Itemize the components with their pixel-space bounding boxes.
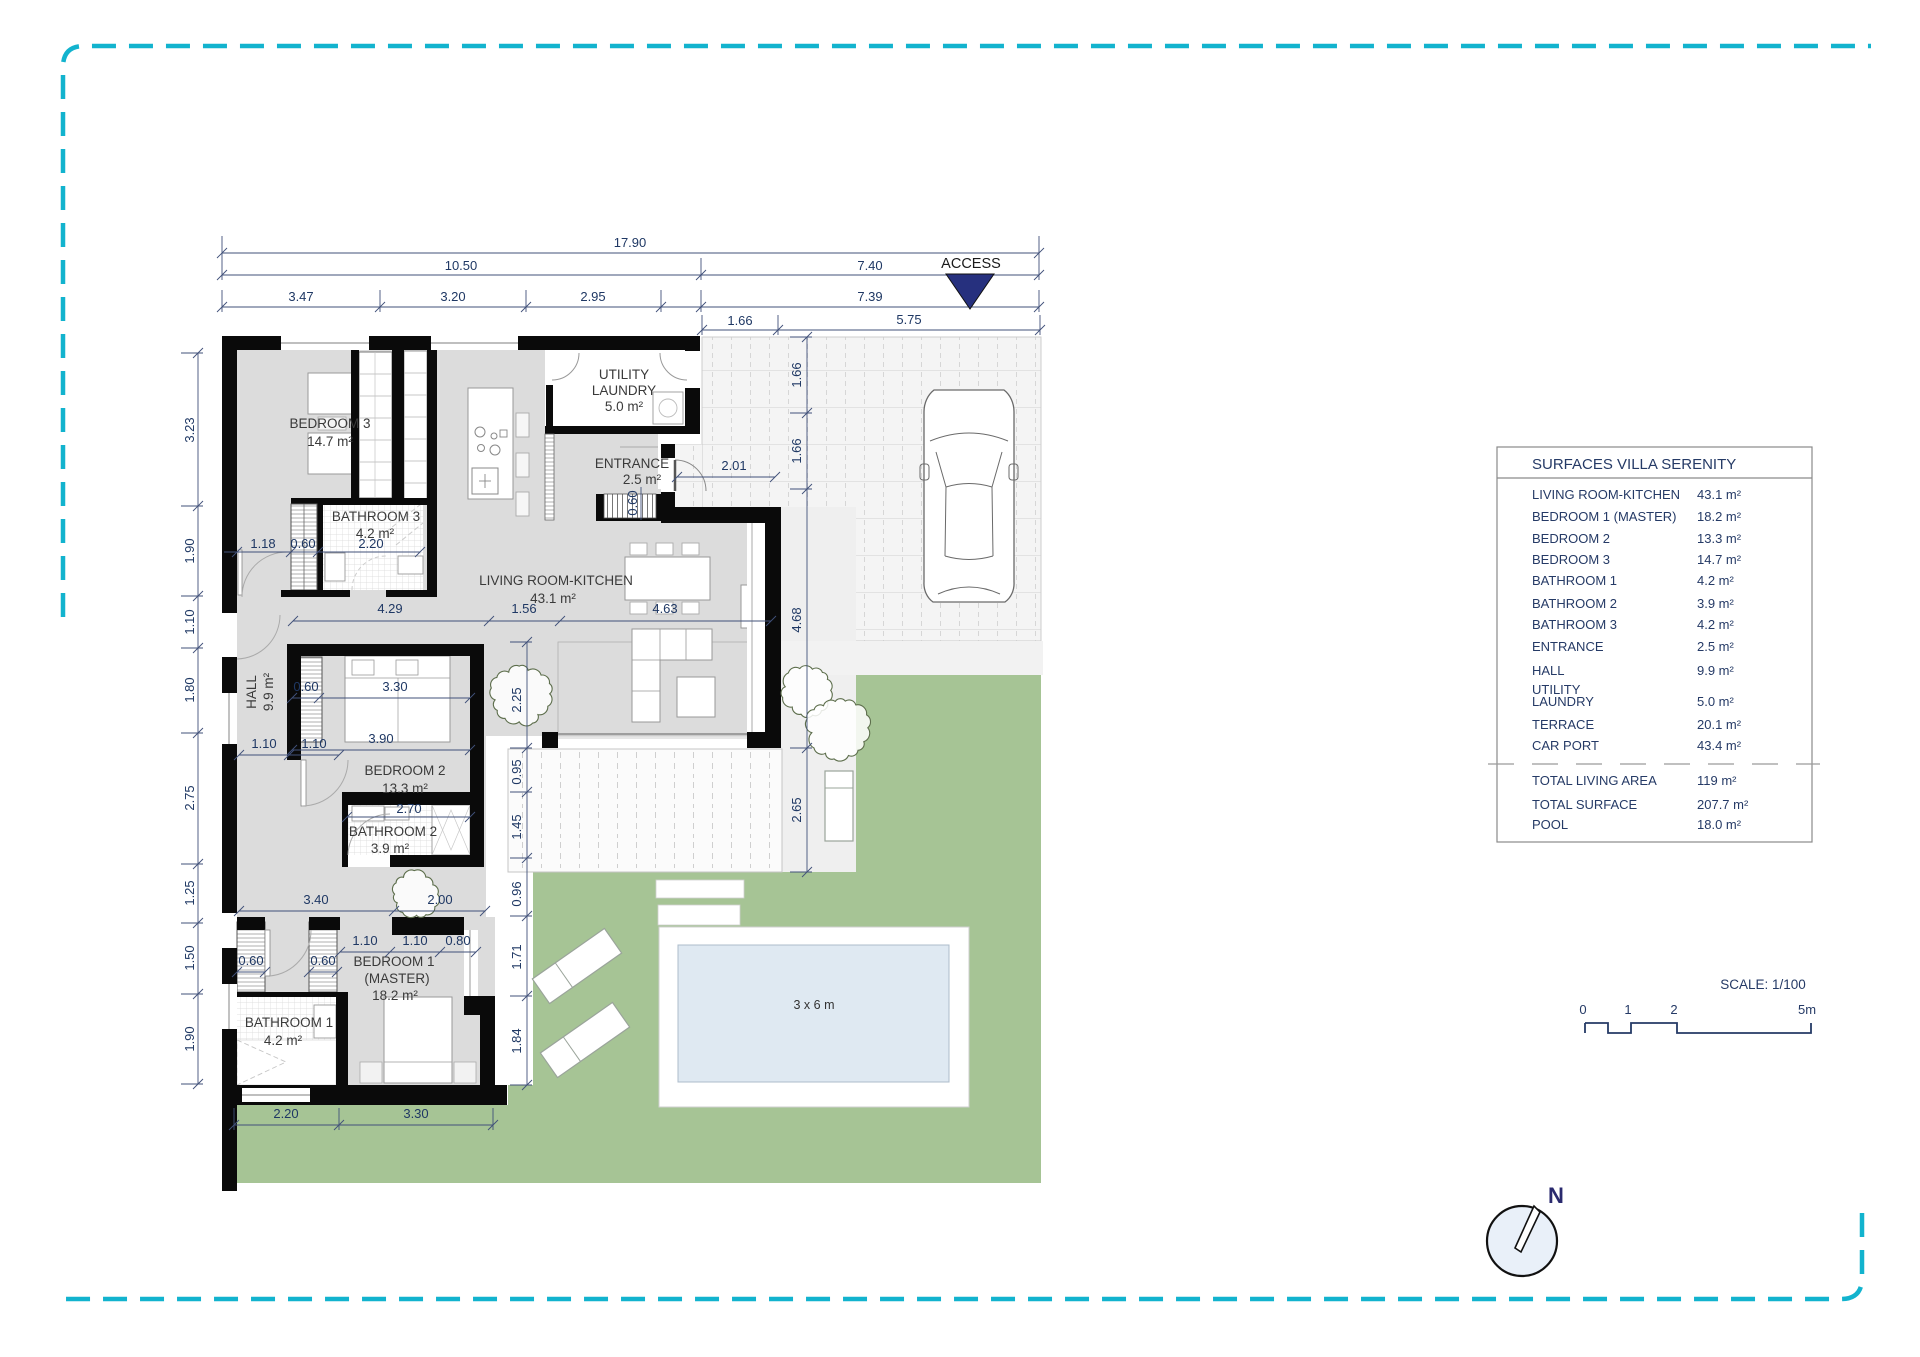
svg-text:2.70: 2.70 bbox=[396, 801, 421, 816]
svg-text:0.60: 0.60 bbox=[625, 490, 640, 515]
svg-text:LAUNDRY: LAUNDRY bbox=[1532, 694, 1594, 709]
svg-text:0.60: 0.60 bbox=[238, 953, 263, 968]
svg-text:3.47: 3.47 bbox=[288, 289, 313, 304]
svg-text:0.60: 0.60 bbox=[290, 536, 315, 551]
svg-text:HALL: HALL bbox=[1532, 663, 1565, 678]
svg-text:4.2 m²: 4.2 m² bbox=[356, 526, 395, 541]
svg-text:TOTAL SURFACE: TOTAL SURFACE bbox=[1532, 797, 1638, 812]
svg-text:SURFACES VILLA SERENITY: SURFACES VILLA SERENITY bbox=[1532, 456, 1736, 473]
svg-text:TOTAL LIVING AREA: TOTAL LIVING AREA bbox=[1532, 773, 1657, 788]
svg-text:1.10: 1.10 bbox=[251, 736, 276, 751]
svg-text:LAUNDRY: LAUNDRY bbox=[592, 383, 656, 398]
svg-text:1.25: 1.25 bbox=[182, 880, 197, 905]
svg-text:7.39: 7.39 bbox=[857, 289, 882, 304]
svg-text:SCALE: 1/100: SCALE: 1/100 bbox=[1720, 977, 1806, 992]
svg-text:LIVING ROOM-KITCHEN: LIVING ROOM-KITCHEN bbox=[1532, 487, 1680, 502]
svg-text:BATHROOM 1: BATHROOM 1 bbox=[245, 1015, 333, 1030]
svg-text:BEDROOM 3: BEDROOM 3 bbox=[289, 416, 370, 431]
svg-text:0.80: 0.80 bbox=[445, 933, 470, 948]
svg-text:43.4 m²: 43.4 m² bbox=[1697, 738, 1742, 753]
svg-text:1: 1 bbox=[1624, 1002, 1631, 1017]
svg-text:5.0 m²: 5.0 m² bbox=[605, 399, 644, 414]
svg-text:5m: 5m bbox=[1798, 1002, 1816, 1017]
svg-text:1.10: 1.10 bbox=[352, 933, 377, 948]
svg-text:1.10: 1.10 bbox=[182, 609, 197, 634]
svg-text:10.50: 10.50 bbox=[445, 258, 478, 273]
svg-text:3.30: 3.30 bbox=[403, 1106, 428, 1121]
svg-text:4.68: 4.68 bbox=[789, 607, 804, 632]
svg-text:1.84: 1.84 bbox=[509, 1028, 524, 1053]
svg-text:0.96: 0.96 bbox=[509, 881, 524, 906]
svg-text:BATHROOM 2: BATHROOM 2 bbox=[349, 824, 437, 839]
svg-text:BEDROOM 1: BEDROOM 1 bbox=[353, 954, 434, 969]
svg-text:4.63: 4.63 bbox=[652, 601, 677, 616]
svg-text:3.40: 3.40 bbox=[303, 892, 328, 907]
svg-text:BEDROOM 2: BEDROOM 2 bbox=[364, 763, 445, 778]
svg-text:2: 2 bbox=[1670, 1002, 1677, 1017]
svg-text:2.20: 2.20 bbox=[273, 1106, 298, 1121]
svg-text:43.1 m²: 43.1 m² bbox=[1697, 487, 1742, 502]
svg-text:9.9 m²: 9.9 m² bbox=[1697, 663, 1735, 678]
svg-text:1.80: 1.80 bbox=[182, 677, 197, 702]
svg-text:2.00: 2.00 bbox=[427, 892, 452, 907]
svg-text:UTILITY: UTILITY bbox=[599, 367, 649, 382]
svg-text:18.0 m²: 18.0 m² bbox=[1697, 817, 1742, 832]
svg-text:(MASTER): (MASTER) bbox=[364, 971, 429, 986]
svg-text:2.65: 2.65 bbox=[789, 797, 804, 822]
svg-text:3 x 6 m: 3 x 6 m bbox=[794, 998, 835, 1012]
svg-text:1.10: 1.10 bbox=[301, 736, 326, 751]
svg-text:3.9 m²: 3.9 m² bbox=[1697, 596, 1735, 611]
svg-text:20.1 m²: 20.1 m² bbox=[1697, 717, 1742, 732]
svg-text:0.95: 0.95 bbox=[509, 759, 524, 784]
svg-text:14.7 m²: 14.7 m² bbox=[1697, 552, 1742, 567]
svg-text:TERRACE: TERRACE bbox=[1532, 717, 1594, 732]
svg-text:207.7 m²: 207.7 m² bbox=[1697, 797, 1749, 812]
svg-text:2.5 m²: 2.5 m² bbox=[623, 472, 662, 487]
svg-text:1.66: 1.66 bbox=[789, 362, 804, 387]
svg-text:1.18: 1.18 bbox=[250, 536, 275, 551]
svg-text:BATHROOM 2: BATHROOM 2 bbox=[1532, 596, 1617, 611]
svg-text:7.40: 7.40 bbox=[857, 258, 882, 273]
svg-text:3.23: 3.23 bbox=[182, 417, 197, 442]
svg-text:BEDROOM 3: BEDROOM 3 bbox=[1532, 552, 1610, 567]
svg-text:2.01: 2.01 bbox=[721, 458, 746, 473]
svg-text:HALL: HALL bbox=[244, 675, 259, 709]
svg-text:4.2 m²: 4.2 m² bbox=[1697, 573, 1735, 588]
svg-text:1.66: 1.66 bbox=[727, 313, 752, 328]
svg-text:1.10: 1.10 bbox=[402, 933, 427, 948]
svg-text:3.9 m²: 3.9 m² bbox=[371, 841, 410, 856]
svg-text:3.90: 3.90 bbox=[368, 731, 393, 746]
svg-text:13.3 m²: 13.3 m² bbox=[382, 781, 428, 796]
svg-text:1.90: 1.90 bbox=[182, 538, 197, 563]
svg-text:18.2 m²: 18.2 m² bbox=[1697, 509, 1742, 524]
svg-text:0: 0 bbox=[1579, 1002, 1586, 1017]
svg-text:5.75: 5.75 bbox=[896, 312, 921, 327]
svg-text:3.30: 3.30 bbox=[382, 679, 407, 694]
svg-text:4.2 m²: 4.2 m² bbox=[1697, 617, 1735, 632]
svg-text:N: N bbox=[1548, 1183, 1564, 1208]
svg-text:BATHROOM 1: BATHROOM 1 bbox=[1532, 573, 1617, 588]
svg-text:BATHROOM 3: BATHROOM 3 bbox=[1532, 617, 1617, 632]
svg-text:3.20: 3.20 bbox=[440, 289, 465, 304]
svg-text:0.60: 0.60 bbox=[293, 679, 318, 694]
svg-text:17.90: 17.90 bbox=[614, 235, 647, 250]
svg-text:2.5 m²: 2.5 m² bbox=[1697, 639, 1735, 654]
svg-text:ENTRANCE: ENTRANCE bbox=[1532, 639, 1604, 654]
svg-text:1.90: 1.90 bbox=[182, 1026, 197, 1051]
svg-text:POOL: POOL bbox=[1532, 817, 1568, 832]
svg-text:2.25: 2.25 bbox=[509, 687, 524, 712]
svg-text:43.1 m²: 43.1 m² bbox=[530, 591, 576, 606]
svg-text:4.2 m²: 4.2 m² bbox=[264, 1033, 303, 1048]
svg-text:2.75: 2.75 bbox=[182, 785, 197, 810]
svg-text:BEDROOM 2: BEDROOM 2 bbox=[1532, 531, 1610, 546]
svg-text:18.2 m²: 18.2 m² bbox=[372, 988, 418, 1003]
svg-text:1.71: 1.71 bbox=[509, 944, 524, 969]
svg-text:0.60: 0.60 bbox=[310, 953, 335, 968]
svg-text:LIVING ROOM-KITCHEN: LIVING ROOM-KITCHEN bbox=[479, 573, 633, 588]
svg-text:ENTRANCE: ENTRANCE bbox=[595, 456, 669, 471]
svg-text:BEDROOM 1 (MASTER): BEDROOM 1 (MASTER) bbox=[1532, 509, 1676, 524]
svg-text:1.66: 1.66 bbox=[789, 438, 804, 463]
svg-text:1.50: 1.50 bbox=[182, 945, 197, 970]
svg-text:BATHROOM 3: BATHROOM 3 bbox=[332, 509, 420, 524]
svg-text:ACCESS: ACCESS bbox=[941, 256, 1001, 272]
svg-text:119 m²: 119 m² bbox=[1697, 773, 1737, 788]
svg-text:4.29: 4.29 bbox=[377, 601, 402, 616]
svg-text:14.7 m²: 14.7 m² bbox=[307, 434, 353, 449]
svg-text:2.95: 2.95 bbox=[580, 289, 605, 304]
svg-text:13.3 m²: 13.3 m² bbox=[1697, 531, 1742, 546]
svg-text:1.45: 1.45 bbox=[509, 814, 524, 839]
svg-text:9.9 m²: 9.9 m² bbox=[261, 672, 276, 711]
svg-text:5.0 m²: 5.0 m² bbox=[1697, 694, 1735, 709]
svg-text:CAR PORT: CAR PORT bbox=[1532, 738, 1599, 753]
